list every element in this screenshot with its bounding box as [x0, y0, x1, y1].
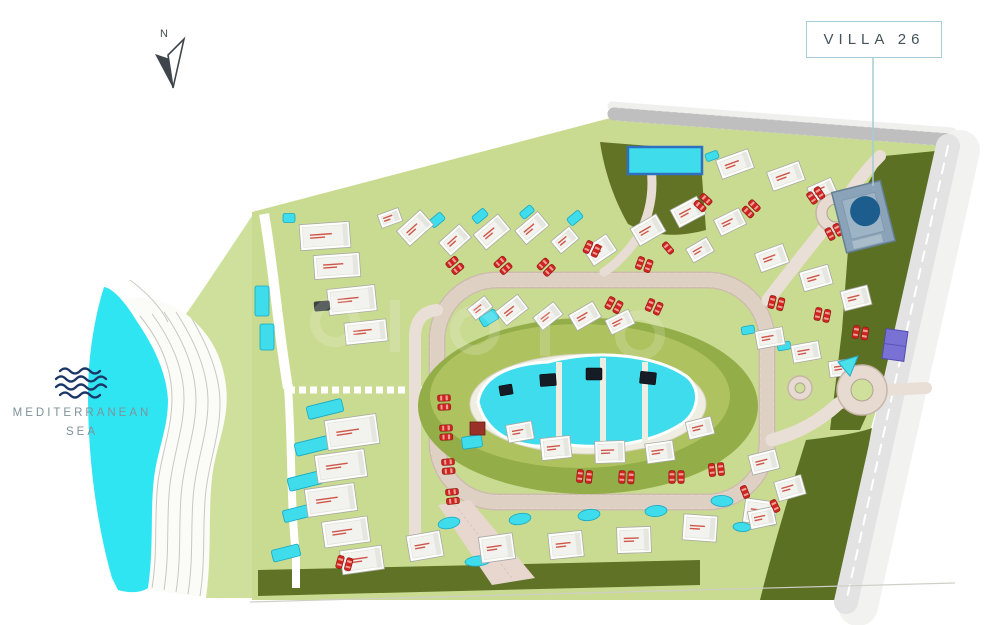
pool [283, 214, 295, 223]
villa [548, 530, 585, 559]
villa [478, 533, 515, 563]
villa [595, 440, 626, 463]
villa [617, 526, 652, 553]
villa [682, 514, 718, 542]
villa [540, 435, 572, 460]
roundabout [837, 365, 887, 415]
north-arrow: N [143, 26, 203, 90]
padel-court [882, 329, 908, 362]
north-letter: N [160, 28, 169, 40]
site-plan-map [0, 0, 1000, 625]
lagoon-pavilion [540, 373, 557, 386]
villa-callout[interactable]: VILLA 26 [806, 21, 942, 58]
lagoon-pavilion [639, 371, 656, 385]
north-arrow-icon [143, 26, 203, 90]
roundabout [788, 376, 812, 400]
sea-label: MEDITERRANEAN SEA [4, 404, 160, 442]
villa [313, 252, 361, 279]
red-roof-building [470, 422, 485, 435]
lagoon-pavilion [499, 384, 514, 396]
waves-icon [52, 366, 114, 402]
villa [299, 221, 351, 250]
pool [255, 286, 269, 316]
pool [461, 435, 482, 450]
villa [645, 440, 676, 464]
pool [741, 325, 755, 335]
site-plan-page: VILLA 26 N MEDITERRANEAN SEA [0, 0, 1000, 625]
villa [406, 530, 444, 562]
sea-label-line2: SEA [4, 423, 160, 442]
communal-pool [628, 147, 702, 174]
sea-label-line1: MEDITERRANEAN [4, 404, 160, 423]
lagoon-pavilion [586, 368, 602, 380]
pool [260, 324, 274, 350]
